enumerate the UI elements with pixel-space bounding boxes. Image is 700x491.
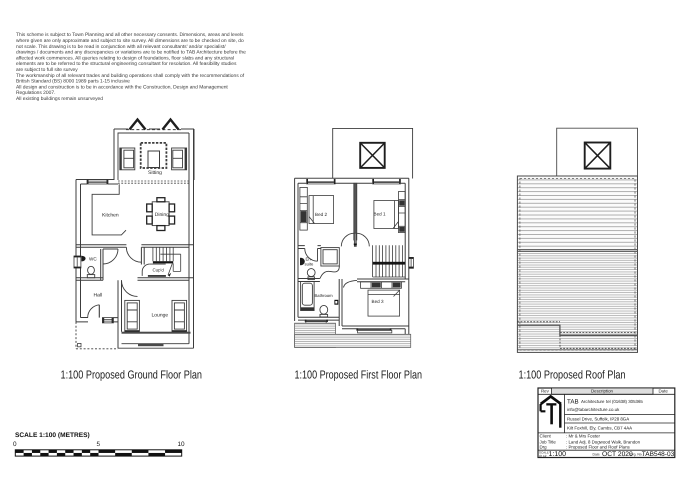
svg-text:Russel Drive, Suffolk, IP28 8G: Russel Drive, Suffolk, IP28 8GA <box>567 417 629 422</box>
svg-text:info@tabarchitecture.co.uk: info@tabarchitecture.co.uk <box>567 407 620 412</box>
svg-text:10: 10 <box>178 441 186 448</box>
svg-text:Bed 1: Bed 1 <box>374 212 386 217</box>
svg-text:: Proposed Floor and Roof Plan: : Proposed Floor and Roof Plans <box>566 445 631 450</box>
svg-text:Bed 3: Bed 3 <box>372 299 384 304</box>
svg-text:Regulations 2007.: Regulations 2007. <box>16 90 55 96</box>
svg-text:TAB548-03: TAB548-03 <box>642 451 675 458</box>
svg-text:0: 0 <box>13 441 17 448</box>
svg-text:Drg: Drg <box>540 445 548 450</box>
svg-text:Hall: Hall <box>94 293 103 299</box>
svg-text:TAB: TAB <box>567 399 579 406</box>
svg-text:All design and construction is: All design and construction is to be in … <box>16 84 228 90</box>
svg-text:Drg. No.: Drg. No. <box>630 452 643 456</box>
svg-text:WC: WC <box>89 257 97 262</box>
svg-text:Lounge: Lounge <box>152 313 169 319</box>
svg-text:1:100 Proposed First Floor Pla: 1:100 Proposed First Floor Plan <box>295 369 423 382</box>
svg-text:This scheme is subject to Town: This scheme is subject to Town Planning … <box>16 32 244 38</box>
svg-text:are subject to full site surve: are subject to full site survey <box>16 67 78 73</box>
svg-text:affected work commences. All: affected work commences. All queries rel… <box>16 55 234 61</box>
svg-text:: Land Adj. 8 Dogwood Walk, Br: : Land Adj. 8 Dogwood Walk, Brandon <box>566 439 641 444</box>
svg-text:Date: Date <box>593 452 600 456</box>
svg-text:Cup'd: Cup'd <box>153 267 165 272</box>
svg-text:Dining: Dining <box>155 212 169 218</box>
svg-text:Kilt Foxhill, Ely, Cambs, CB7: Kilt Foxhill, Ely, Cambs, CB7 4AA <box>567 425 632 430</box>
svg-text:Job Title: Job Title <box>540 439 557 444</box>
svg-text:drawings / documents and any d: drawings / documents and any discrepanci… <box>16 50 246 56</box>
svg-text:: Mr & Mrs Foster: : Mr & Mrs Foster <box>566 434 600 439</box>
svg-text:Kitchen: Kitchen <box>102 213 119 219</box>
svg-text:@ A2: @ A2 <box>539 454 547 458</box>
svg-text:Client: Client <box>540 434 552 439</box>
svg-text:Bed 2: Bed 2 <box>315 212 327 217</box>
svg-text:OCT 2020: OCT 2020 <box>602 451 633 458</box>
svg-text:Date: Date <box>659 389 669 394</box>
svg-text:Architecture: Architecture <box>581 399 605 404</box>
svg-text:All existing buildings remain: All existing buildings remain unsurveyed <box>16 96 103 102</box>
svg-text:tel (01638) 305365: tel (01638) 305365 <box>606 399 643 404</box>
svg-text:Bathroom: Bathroom <box>315 293 334 298</box>
svg-text:Rev: Rev <box>541 389 550 394</box>
svg-text:SCALE 1:100 (METRES): SCALE 1:100 (METRES) <box>15 432 90 439</box>
svg-text:elements are to be referred to: elements are to be referred to the struc… <box>16 61 237 67</box>
svg-text:suite: suite <box>305 262 315 267</box>
svg-text:British Standard (BS) 8000 198: British Standard (BS) 8000 1989 parts 1-… <box>16 79 130 85</box>
svg-text:Description: Description <box>591 389 614 394</box>
svg-text:where given are only approxima: where given are only approximate and sub… <box>16 38 244 44</box>
svg-text:1:100 Proposed Roof Plan: 1:100 Proposed Roof Plan <box>519 369 626 382</box>
svg-text:5: 5 <box>97 441 101 448</box>
svg-text:not scale. This drawing is to: not scale. This drawing is to be read in… <box>16 44 226 50</box>
svg-text:Sitting: Sitting <box>148 170 162 176</box>
svg-text:The workmanship of all relevan: The workmanship of all relevant trades a… <box>16 73 245 79</box>
svg-text:1:100: 1:100 <box>549 451 567 458</box>
svg-text:1:100 Proposed Ground Floor Pl: 1:100 Proposed Ground Floor Plan <box>61 369 203 382</box>
